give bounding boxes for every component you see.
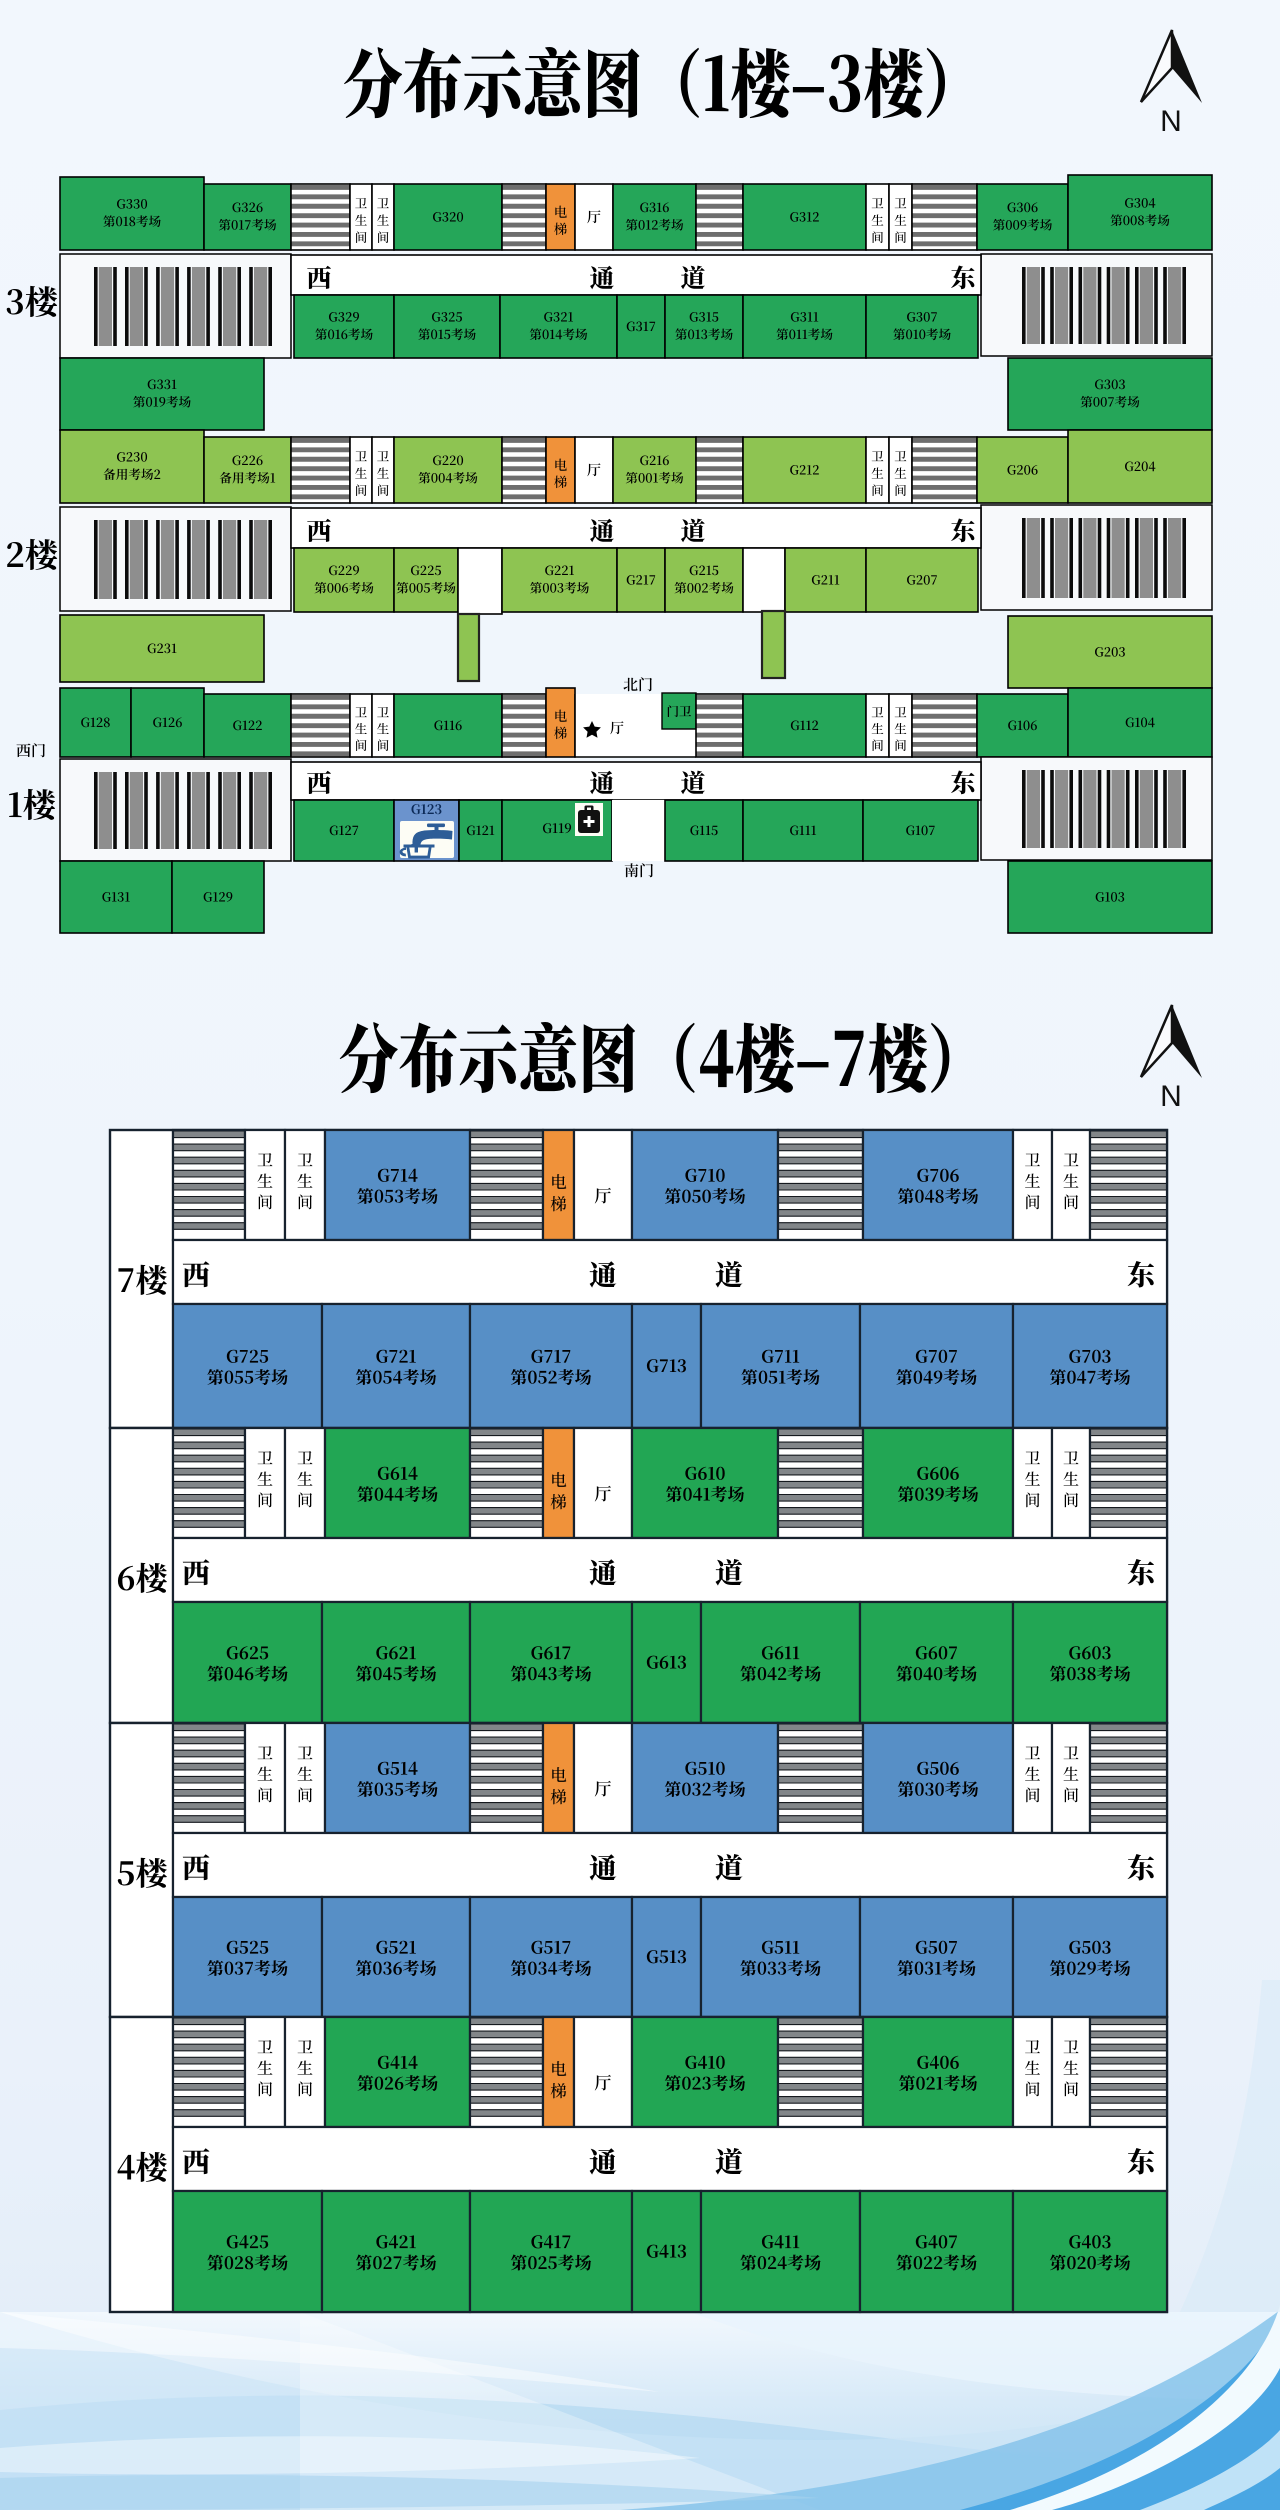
svg-text:N: N — [1160, 105, 1182, 138]
svg-text:N: N — [1160, 1080, 1182, 1113]
